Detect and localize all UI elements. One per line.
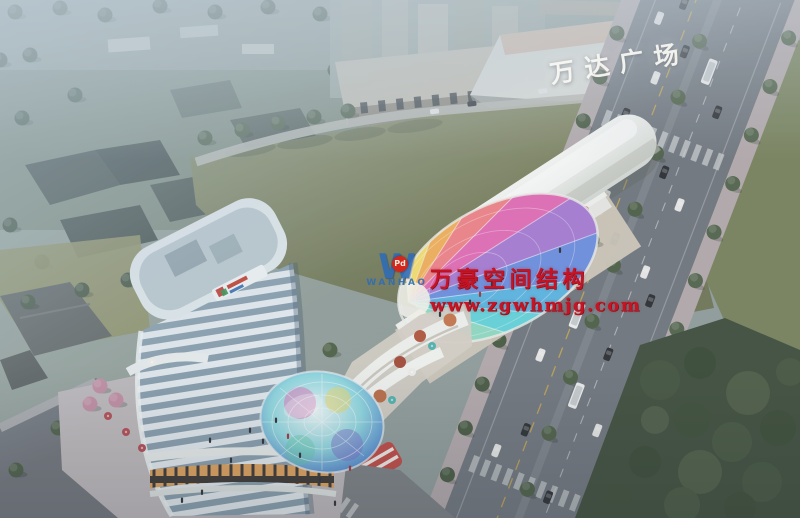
wanhao-badge-icon: Pd bbox=[392, 256, 408, 272]
aerial-rendering-scene: 万达广场 W Pd WANHAO 万豪空间结构 www.zgwhmjg.com bbox=[0, 0, 800, 518]
watermark-logo: W Pd WANHAO bbox=[366, 252, 428, 288]
watermark-line1: 万豪空间结构 bbox=[430, 262, 641, 294]
watermark-line2: www.zgwhmjg.com bbox=[430, 295, 641, 316]
watermark-text: 万豪空间结构 www.zgwhmjg.com bbox=[430, 262, 641, 316]
watermark-logo-name: WANHAO bbox=[366, 278, 428, 288]
